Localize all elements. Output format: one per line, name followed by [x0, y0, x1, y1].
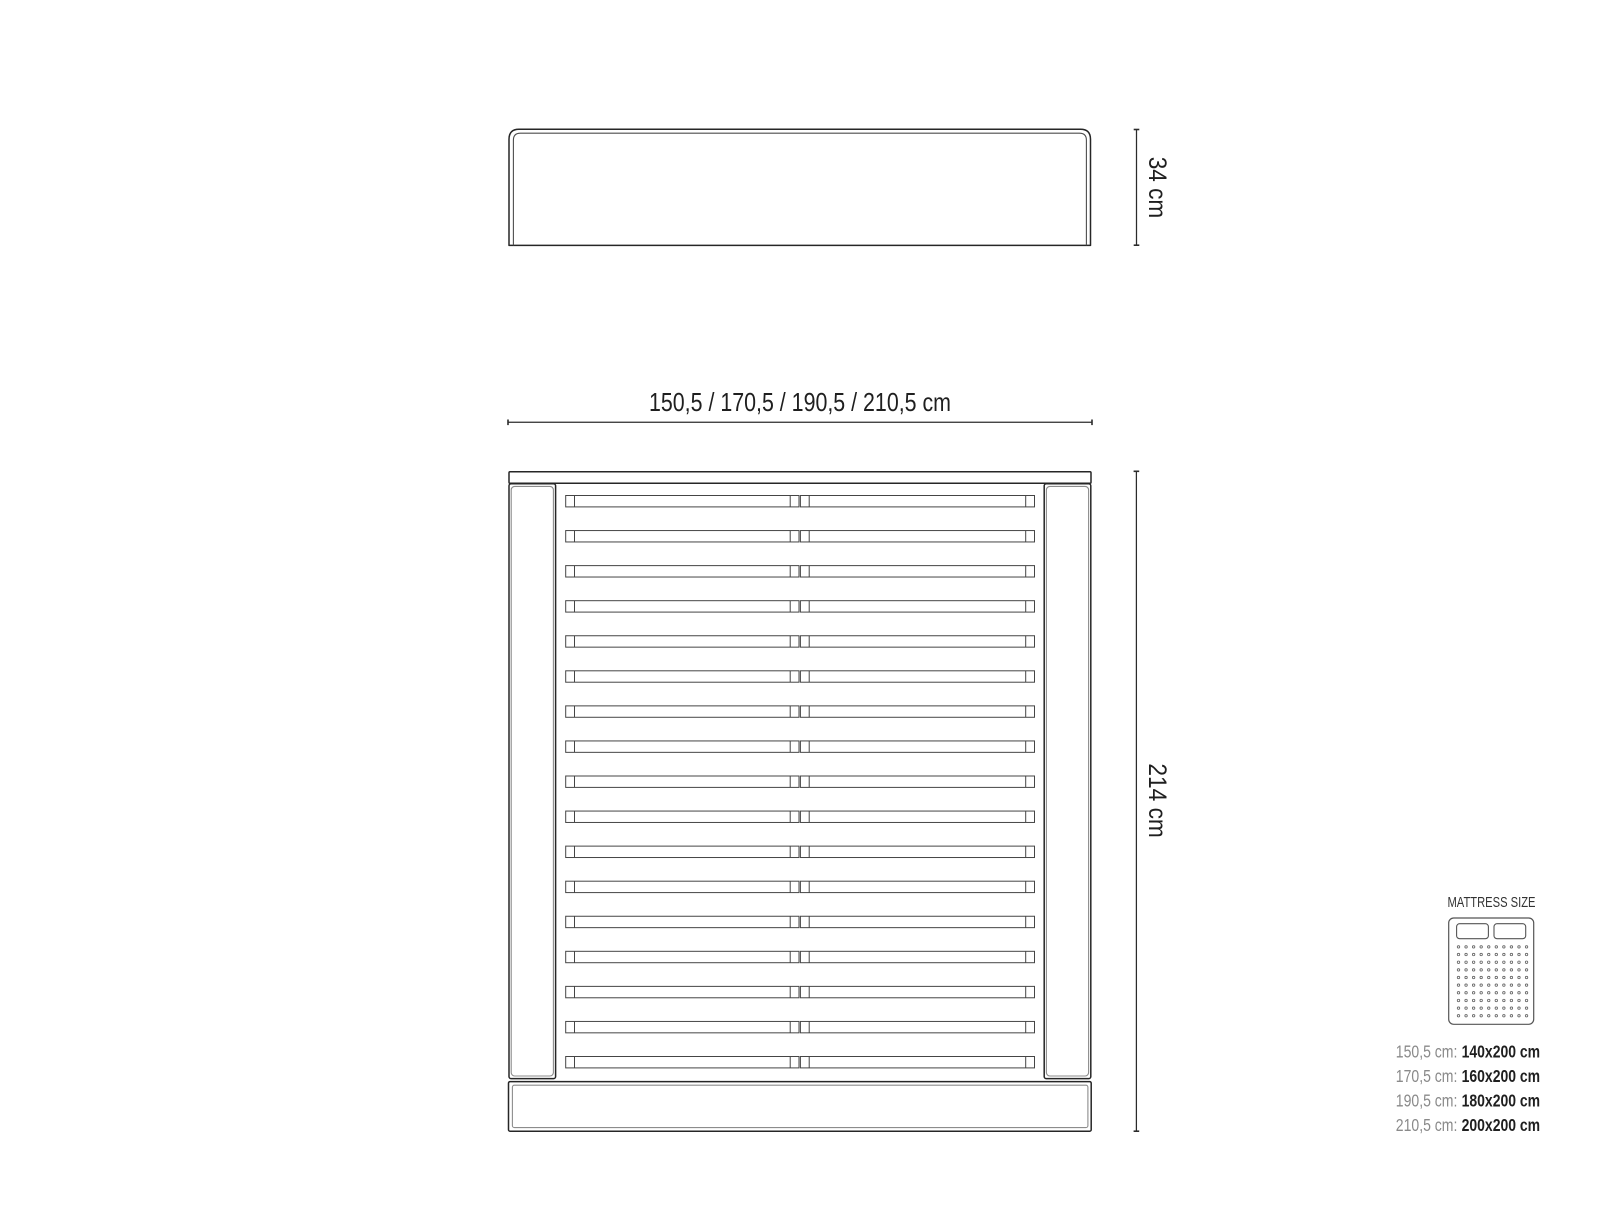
- svg-text:200x200 cm: 200x200 cm: [1462, 1115, 1541, 1135]
- svg-text:140x200 cm: 140x200 cm: [1462, 1041, 1541, 1061]
- svg-text:MATTRESS SIZE: MATTRESS SIZE: [1448, 895, 1536, 911]
- svg-text:34 cm: 34 cm: [1143, 157, 1171, 219]
- svg-text:190,5 cm:: 190,5 cm:: [1396, 1090, 1458, 1110]
- svg-text:170,5 cm:: 170,5 cm:: [1396, 1066, 1458, 1086]
- svg-text:214 cm: 214 cm: [1143, 763, 1171, 838]
- svg-text:210,5 cm:: 210,5 cm:: [1396, 1115, 1458, 1135]
- svg-text:150,5 cm:: 150,5 cm:: [1396, 1041, 1458, 1061]
- svg-text:160x200 cm: 160x200 cm: [1462, 1066, 1541, 1086]
- svg-text:180x200 cm: 180x200 cm: [1462, 1090, 1541, 1110]
- svg-text:150,5 / 170,5 / 190,5 / 210,5: 150,5 / 170,5 / 190,5 / 210,5 cm: [649, 387, 951, 417]
